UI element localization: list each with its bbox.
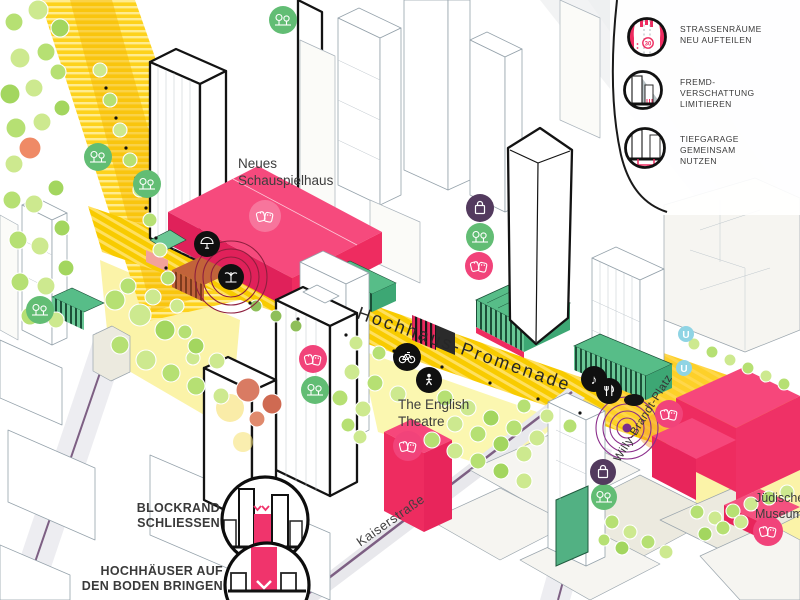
red-tree: [249, 411, 265, 427]
annotation-text: DEN BODEN BRINGEN: [82, 579, 223, 593]
tempo-30-value: 30: [645, 42, 652, 48]
legend-text: GEMEINSAM: [680, 145, 736, 155]
badge-trees: [26, 296, 54, 324]
orange-tree: [19, 137, 41, 159]
legend-text: STRASSENRÄUME: [680, 24, 762, 34]
legend-text: NUTZEN: [680, 156, 717, 166]
ubahn-entrance-marker: U: [676, 360, 692, 376]
legend-text: TIEFGARAGE: [680, 134, 739, 144]
badge-theatre-masks: [393, 431, 423, 461]
legend-text: LIMITIEREN: [680, 99, 732, 109]
label-english-theatre: The English: [398, 397, 469, 412]
badge-fountain: [218, 264, 244, 290]
legend-text: FREMD-: [680, 77, 715, 87]
music-note-icon: ♪: [591, 372, 598, 387]
badge-trees: [133, 170, 161, 198]
label-neues-schauspielhaus: Schauspielhaus: [238, 173, 334, 188]
u-bahn-icon: U: [680, 364, 687, 375]
badge-pavilion: [194, 231, 220, 257]
badge-theatre-masks: [299, 345, 327, 373]
label-juedisches-museum: Jüdisches: [755, 491, 800, 505]
red-tree: [236, 378, 260, 402]
badge-dining: [596, 378, 622, 404]
badge-theatre-masks: [465, 252, 493, 280]
u-bahn-icon: U: [682, 330, 689, 341]
black-marker-ellipse: [624, 394, 644, 406]
legend: 30 STRASSENRÄUME NEU AUFTEILEN FREMD- VE…: [610, 0, 800, 215]
badge-shopping-bag: [590, 459, 616, 485]
map-canvas: ♪ U U Neues Schauspielhaus Hochhaus-Prom…: [0, 0, 800, 600]
badge-trees: [84, 143, 112, 171]
ubahn-entrance-marker: U: [678, 326, 694, 342]
annotation-text: SCHLIESSEN: [137, 516, 220, 530]
label-juedisches-museum: Museum: [755, 507, 800, 521]
legend-text: VERSCHATTUNG: [680, 88, 755, 98]
badge-pedestrian: [416, 367, 442, 393]
urban-design-axonometric-map: ♪ U U Neues Schauspielhaus Hochhaus-Prom…: [0, 0, 800, 600]
annotation-text: HOCHHÄUSER AUF: [101, 563, 224, 578]
beige-building: [93, 326, 130, 381]
badge-bicycle: [393, 343, 421, 371]
label-english-theatre: Theatre: [398, 414, 445, 429]
badge-theatre-masks: [249, 200, 281, 232]
bold-faceted-tower: [508, 128, 572, 344]
badge-trees: [591, 484, 617, 510]
annotation-text: BLOCKRAND: [137, 501, 220, 515]
red-tree: [262, 394, 282, 414]
legend-text: NEU AUFTEILEN: [680, 35, 752, 45]
badge-trees: [301, 376, 329, 404]
badge-trees: [269, 6, 297, 34]
badge-shopping-bag: [466, 194, 494, 222]
badge-trees: [466, 223, 494, 251]
label-neues-schauspielhaus: Neues: [238, 156, 277, 171]
